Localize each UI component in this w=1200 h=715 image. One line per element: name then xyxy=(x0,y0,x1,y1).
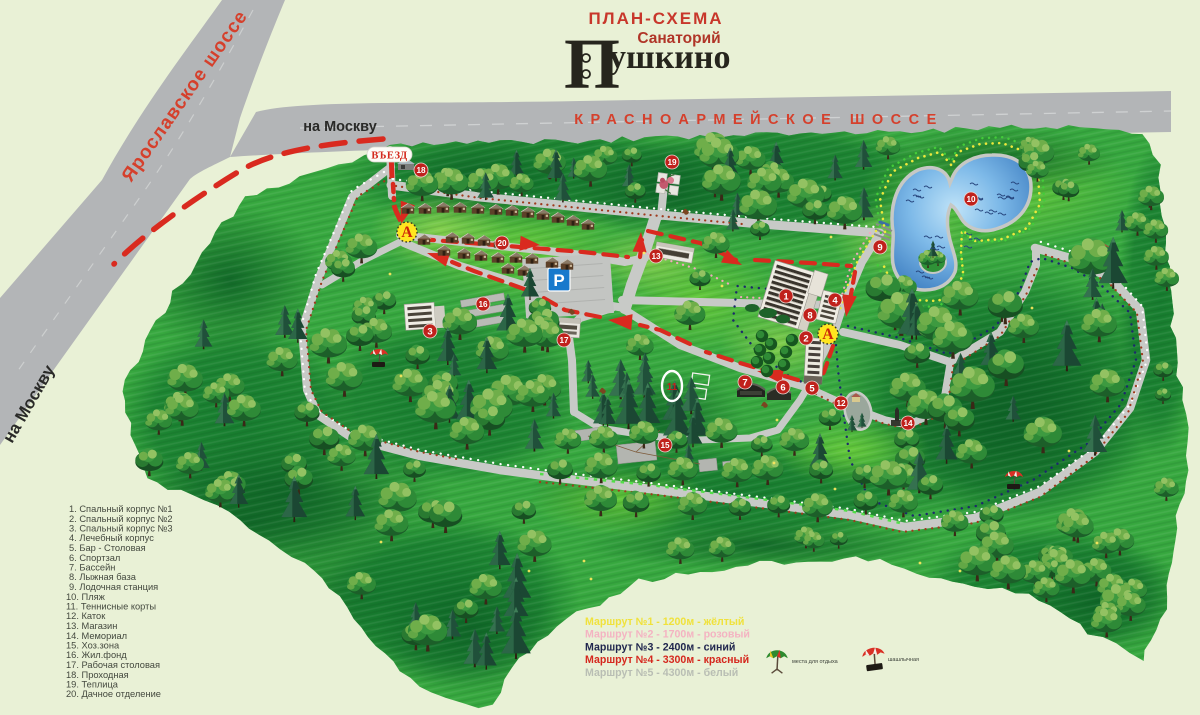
svg-text:P: P xyxy=(553,271,564,290)
svg-text:ВЪЕЗД: ВЪЕЗД xyxy=(371,151,408,162)
svg-text:на Москву: на Москву xyxy=(303,119,377,135)
svg-text:1. Спальный корпус №1: 1. Спальный корпус №1 xyxy=(69,504,173,514)
svg-text:Маршрут №5 - 4300м - белый: Маршрут №5 - 4300м - белый xyxy=(585,667,738,679)
svg-text:места для отдыха: места для отдыха xyxy=(792,659,839,665)
svg-text:13: 13 xyxy=(651,252,661,261)
svg-text:10: 10 xyxy=(966,195,976,204)
svg-text:7. Бассейн: 7. Бассейн xyxy=(69,563,115,573)
svg-text:10. Пляж: 10. Пляж xyxy=(66,592,106,602)
svg-text:17: 17 xyxy=(559,336,569,345)
svg-text:20: 20 xyxy=(497,239,507,248)
svg-text:Маршрут №1 - 1200м - жёлтый: Маршрут №1 - 1200м - жёлтый xyxy=(585,616,744,628)
svg-text:4: 4 xyxy=(832,295,838,306)
svg-text:шашлычная: шашлычная xyxy=(888,657,919,663)
svg-text:1: 1 xyxy=(783,291,789,302)
svg-text:15: 15 xyxy=(660,441,670,450)
svg-text:20. Дачное отделение: 20. Дачное отделение xyxy=(66,689,161,699)
svg-text:4. Лечебный корпус: 4. Лечебный корпус xyxy=(69,533,154,543)
svg-text:9: 9 xyxy=(877,242,882,253)
svg-text:15. Хоз.зона: 15. Хоз.зона xyxy=(66,641,120,651)
svg-text:6. Спортзал: 6. Спортзал xyxy=(69,553,120,563)
svg-text:14. Мемориал: 14. Мемориал xyxy=(66,631,127,641)
svg-text:5. Бар - Столовая: 5. Бар - Столовая xyxy=(69,543,146,553)
svg-text:19. Теплица: 19. Теплица xyxy=(66,680,119,690)
svg-text:5: 5 xyxy=(809,383,815,394)
svg-text:ушкино: ушкино xyxy=(609,39,730,76)
svg-text:КРАСНОАРМЕЙСКОЕ ШОССЕ: КРАСНОАРМЕЙСКОЕ ШОССЕ xyxy=(574,110,944,128)
svg-text:Маршрут №4 - 3300м - красный: Маршрут №4 - 3300м - красный xyxy=(585,654,749,666)
svg-text:8. Лыжная база: 8. Лыжная база xyxy=(69,572,137,582)
svg-text:14: 14 xyxy=(903,419,913,428)
svg-text:2. Спальный корпус №2: 2. Спальный корпус №2 xyxy=(69,514,173,524)
svg-text:Маршрут №3 - 2400м - синий: Маршрут №3 - 2400м - синий xyxy=(585,641,735,653)
svg-text:9. Лодочная станция: 9. Лодочная станция xyxy=(69,582,158,592)
svg-text:17. Рабочая столовая: 17. Рабочая столовая xyxy=(66,660,160,670)
svg-text:Маршрут №2 - 1700м - розовый: Маршрут №2 - 1700м - розовый xyxy=(585,629,750,641)
svg-text:А: А xyxy=(401,224,413,241)
svg-text:8: 8 xyxy=(807,310,812,321)
svg-text:7: 7 xyxy=(742,377,747,388)
svg-text:6: 6 xyxy=(780,382,785,393)
svg-text:12. Каток: 12. Каток xyxy=(66,611,106,621)
svg-text:2: 2 xyxy=(803,333,808,344)
svg-text:11. Теннисные корты: 11. Теннисные корты xyxy=(66,602,156,612)
svg-text:18: 18 xyxy=(416,166,426,175)
svg-text:19: 19 xyxy=(667,158,677,167)
svg-text:11: 11 xyxy=(667,382,678,393)
svg-text:12: 12 xyxy=(836,399,846,408)
svg-text:16: 16 xyxy=(478,300,488,309)
svg-text:3: 3 xyxy=(427,326,432,337)
svg-text:16. Жил.фонд: 16. Жил.фонд xyxy=(66,650,127,660)
svg-text:13. Магазин: 13. Магазин xyxy=(66,621,117,631)
svg-text:А: А xyxy=(822,326,834,343)
svg-text:3. Спальный корпус №3: 3. Спальный корпус №3 xyxy=(69,524,173,534)
svg-text:18. Проходная: 18. Проходная xyxy=(66,670,129,680)
